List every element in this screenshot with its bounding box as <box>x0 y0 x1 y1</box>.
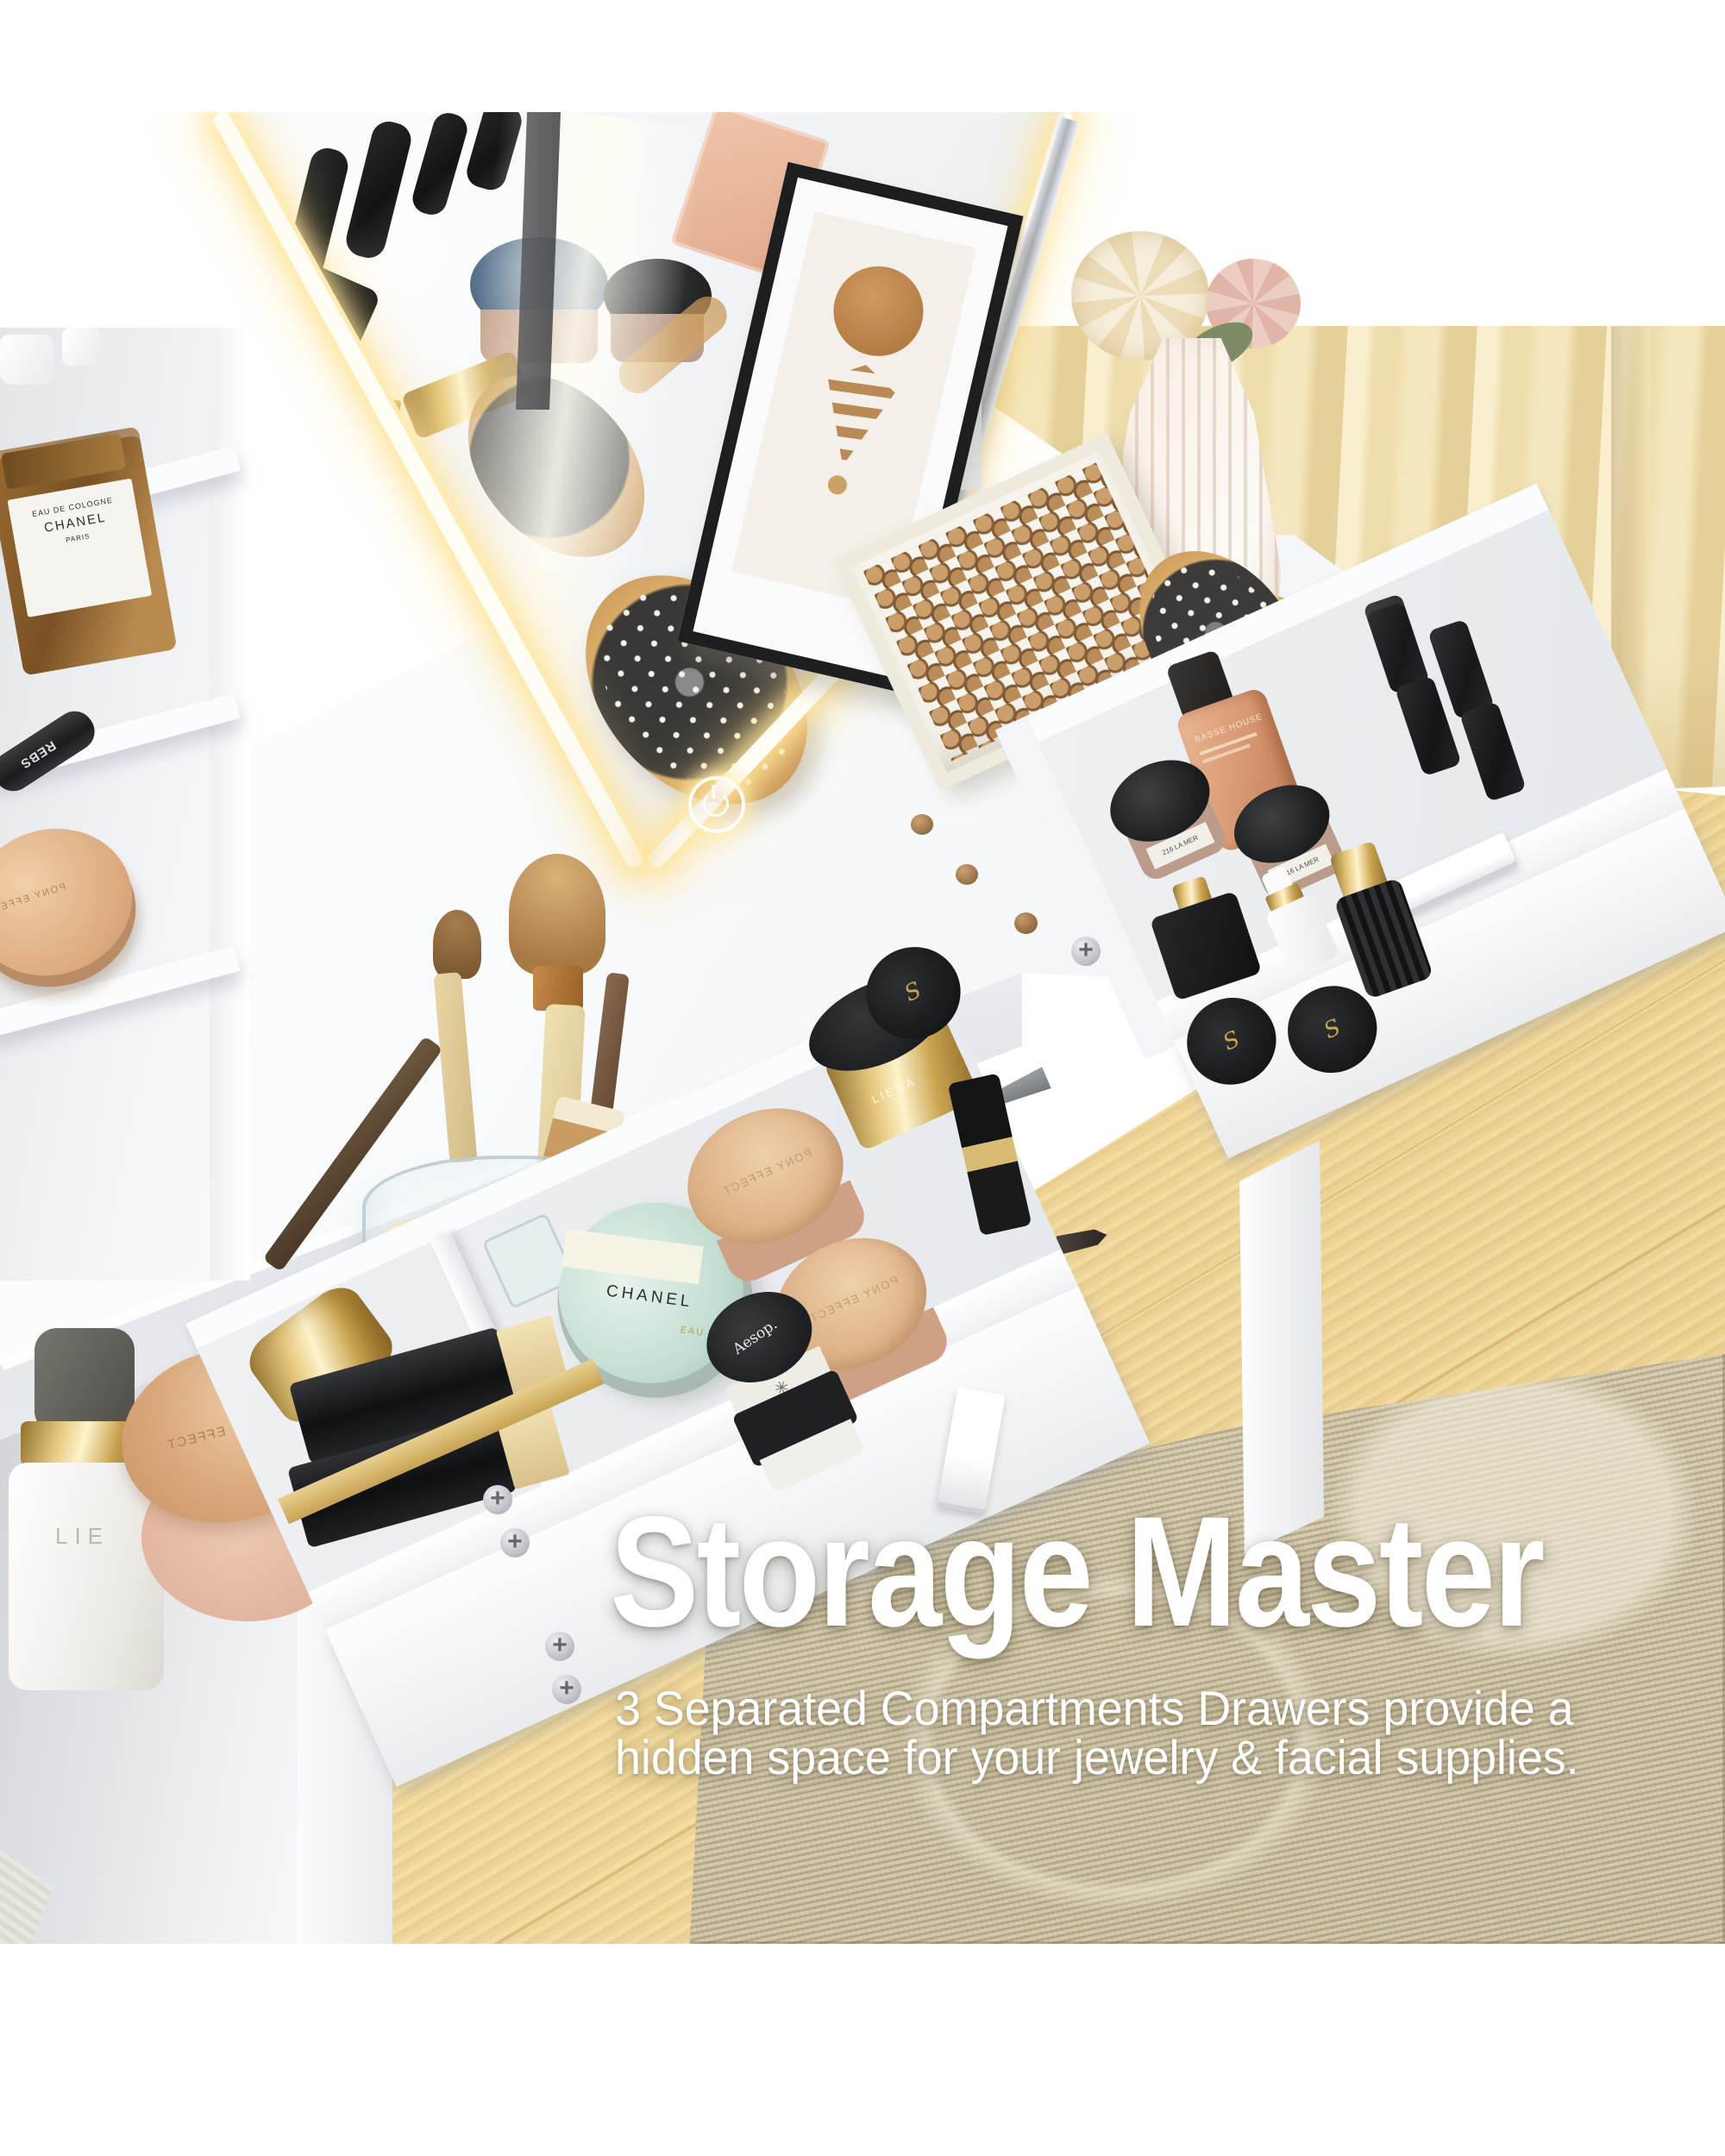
rail-screw-2: + <box>500 1528 530 1557</box>
headline-text: Storage Master <box>610 1483 1543 1659</box>
chanel-name: CHANEL <box>605 1282 694 1313</box>
s-jar-logo-2: S <box>1320 1014 1345 1044</box>
serum-brand: LIE <box>55 1523 110 1550</box>
brush-small-head <box>433 910 481 979</box>
s-jar-logo-3: S <box>900 977 925 1007</box>
white-pot-small <box>62 328 100 366</box>
touch-power-ring <box>703 791 729 817</box>
page-top-margin <box>0 0 1725 112</box>
chanel-label-strip <box>561 1229 703 1285</box>
cologne-label: EAU DE COLOGNE CHANEL PARIS <box>7 479 152 617</box>
aesop-brand: Aesop. <box>730 1316 781 1358</box>
subtitle-line2: hidden space for your jewelry & facial s… <box>615 1733 1579 1782</box>
divider-screw: + <box>1071 937 1101 966</box>
tan-pencil-tip <box>1056 1225 1108 1255</box>
print-dot <box>826 473 849 496</box>
board-screw-2: + <box>552 1675 581 1704</box>
touch-power-stem <box>712 785 715 799</box>
print-circle <box>825 257 932 365</box>
subtitle: 3 Separated Compartments Drawers provide… <box>615 1683 1579 1782</box>
subtitle-line1: 3 Separated Compartments Drawers provide… <box>615 1683 1579 1733</box>
board-screw-1: + <box>545 1632 574 1661</box>
reflected-tube-3 <box>409 110 471 218</box>
product-marketing-image: EAU DE COLOGNE CHANEL PARIS REBS PONY EF… <box>0 0 1725 2156</box>
white-pot <box>0 335 53 385</box>
shelf-compact-brand: PONY EFFECT <box>0 881 67 918</box>
foundation-brand: BASSE HOUSE <box>1194 712 1264 745</box>
rail-screw-1: + <box>483 1485 512 1514</box>
page-bottom-margin <box>0 1944 1725 2156</box>
pc1-brand: PONY EFFECT <box>720 1146 814 1198</box>
print-chevrons <box>809 357 900 473</box>
headline: Storage Master <box>610 1493 1543 1650</box>
ldj-brand: LIERA <box>869 1074 919 1106</box>
pc2-brand: PONY EFFECT <box>806 1274 900 1326</box>
reflected-tube-2 <box>342 118 414 261</box>
brush-small-handle <box>433 972 477 1163</box>
foundation-label-line2 <box>1202 743 1251 763</box>
scattered-bead-2 <box>956 864 978 885</box>
s-jar-logo-1: S <box>1220 1026 1245 1056</box>
brush-fluffy-head <box>509 854 605 975</box>
rebs-text: REBS <box>17 737 59 771</box>
scattered-bead-1 <box>911 814 933 835</box>
scattered-bead-3 <box>1014 912 1038 934</box>
mirror-touch-button-icon <box>688 776 745 833</box>
